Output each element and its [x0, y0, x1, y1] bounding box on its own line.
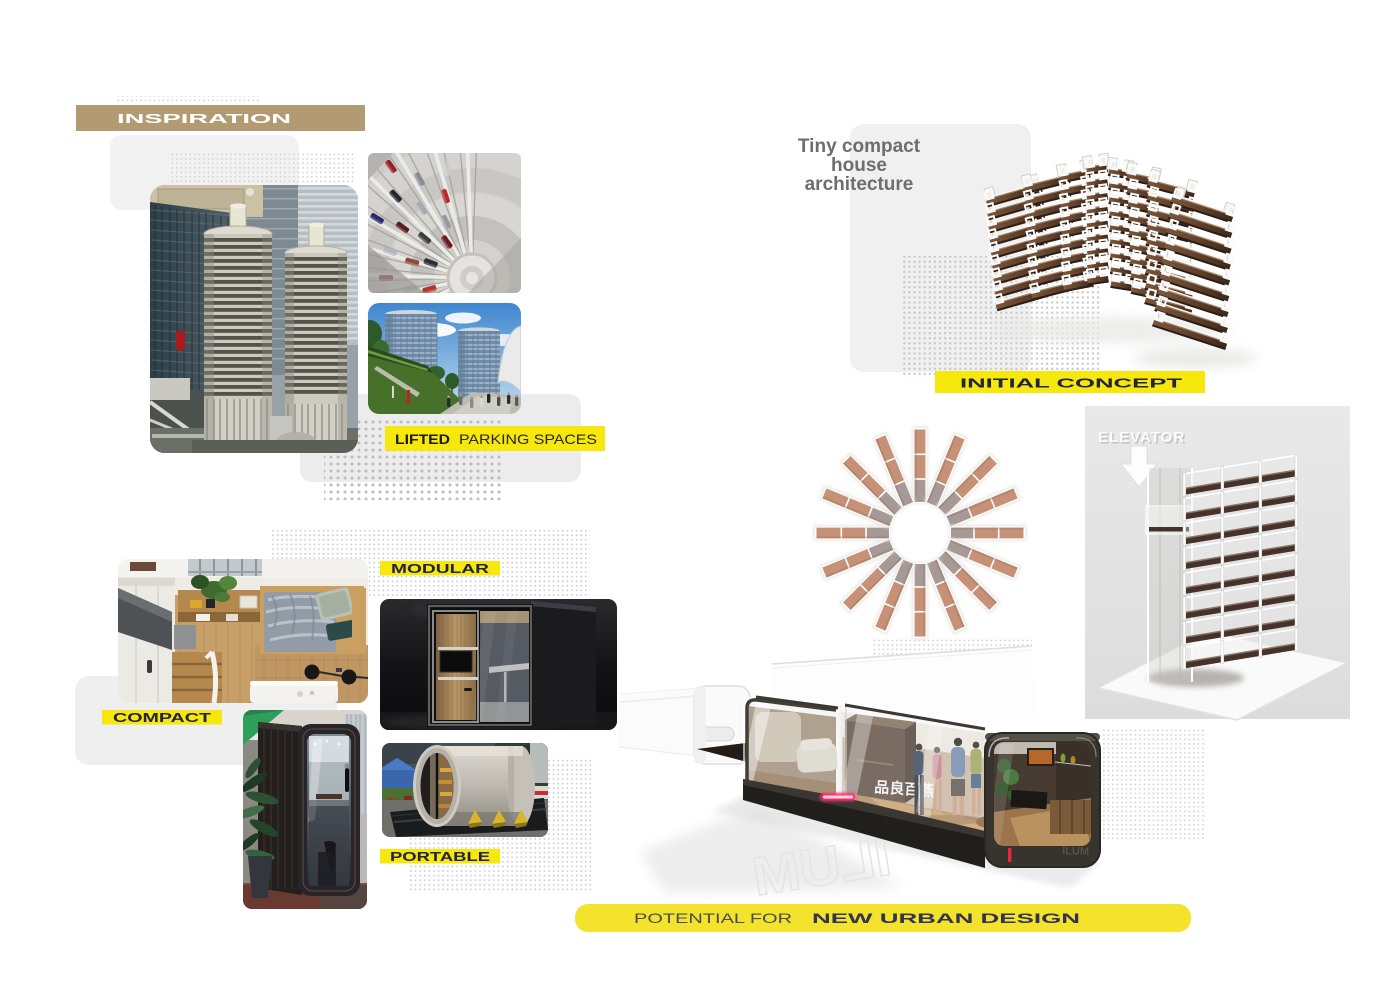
svg-text:ELEVATOR: ELEVATOR: [1098, 429, 1185, 446]
svg-text:ILUM: ILUM: [1062, 845, 1089, 858]
svg-text:PORTABLE: PORTABLE: [390, 850, 490, 864]
svg-text:Tiny compact: Tiny compact: [798, 136, 921, 157]
svg-text:architecture: architecture: [805, 174, 914, 195]
svg-text:POTENTIAL FOR: POTENTIAL FOR: [634, 910, 792, 926]
svg-text:PARKING SPACES: PARKING SPACES: [459, 431, 597, 447]
svg-text:INSPIRATION: INSPIRATION: [117, 112, 291, 126]
svg-text:NEW URBAN DESIGN: NEW URBAN DESIGN: [812, 910, 1080, 926]
svg-text:house: house: [831, 155, 887, 176]
svg-text:LIFTED: LIFTED: [395, 431, 450, 447]
svg-text:MODULAR: MODULAR: [391, 562, 489, 576]
svg-text:INITIAL CONCEPT: INITIAL CONCEPT: [960, 377, 1183, 391]
svg-text:COMPACT: COMPACT: [113, 711, 212, 725]
